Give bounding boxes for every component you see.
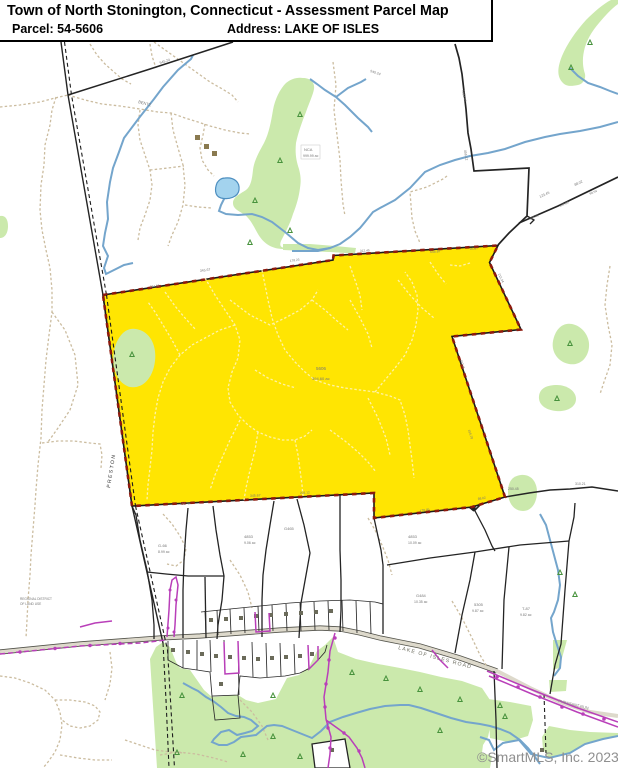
svg-text:10.09 ac: 10.09 ac [408, 541, 422, 545]
svg-text:95.67: 95.67 [470, 246, 478, 251]
svg-text:G-66: G-66 [158, 543, 168, 548]
svg-text:123.45: 123.45 [539, 191, 550, 199]
svg-text:345.67: 345.67 [200, 268, 211, 273]
svg-text:999.99 ac: 999.99 ac [303, 154, 319, 158]
svg-text:G484: G484 [416, 593, 427, 598]
svg-text:4853: 4853 [244, 534, 254, 539]
svg-text:4853: 4853 [408, 534, 418, 539]
svg-text:9.06 ac: 9.06 ac [244, 541, 256, 545]
svg-text:122.83: 122.83 [559, 200, 570, 208]
svg-text:9.82 ac: 9.82 ac [520, 613, 532, 617]
svg-text:10.35 ac: 10.35 ac [414, 600, 428, 604]
svg-text:NCA: NCA [304, 147, 313, 152]
svg-text:545.24: 545.24 [370, 69, 381, 76]
svg-text:456.12: 456.12 [463, 150, 468, 161]
svg-text:178.23: 178.23 [290, 258, 300, 263]
svg-text:PRESTON: PRESTON [106, 453, 117, 488]
svg-text:REGIONAL DISTRICT: REGIONAL DISTRICT [20, 597, 52, 601]
svg-text:5606: 5606 [316, 366, 327, 371]
svg-text:310.21: 310.21 [575, 482, 586, 486]
svg-text:8.99 ac: 8.99 ac [158, 550, 170, 554]
svg-text:OF LAND USE: OF LAND USE [20, 602, 41, 606]
svg-text:156.78: 156.78 [180, 501, 190, 506]
svg-text:545.67: 545.67 [430, 249, 441, 254]
svg-text:T-87: T-87 [522, 606, 531, 611]
svg-text:88.02: 88.02 [574, 180, 584, 187]
svg-text:345.67: 345.67 [250, 493, 261, 498]
svg-text:394.60 ac: 394.60 ac [312, 376, 330, 381]
svg-text:5305: 5305 [474, 602, 484, 607]
svg-text:203.12: 203.12 [300, 490, 310, 495]
svg-text:1123.45: 1123.45 [461, 89, 467, 102]
svg-text:312.45: 312.45 [360, 248, 370, 253]
svg-text:250.45: 250.45 [508, 487, 519, 491]
svg-text:9.87 ac: 9.87 ac [472, 609, 484, 613]
svg-text:BENTZ: BENTZ [138, 99, 152, 107]
svg-text:G465: G465 [284, 526, 295, 531]
